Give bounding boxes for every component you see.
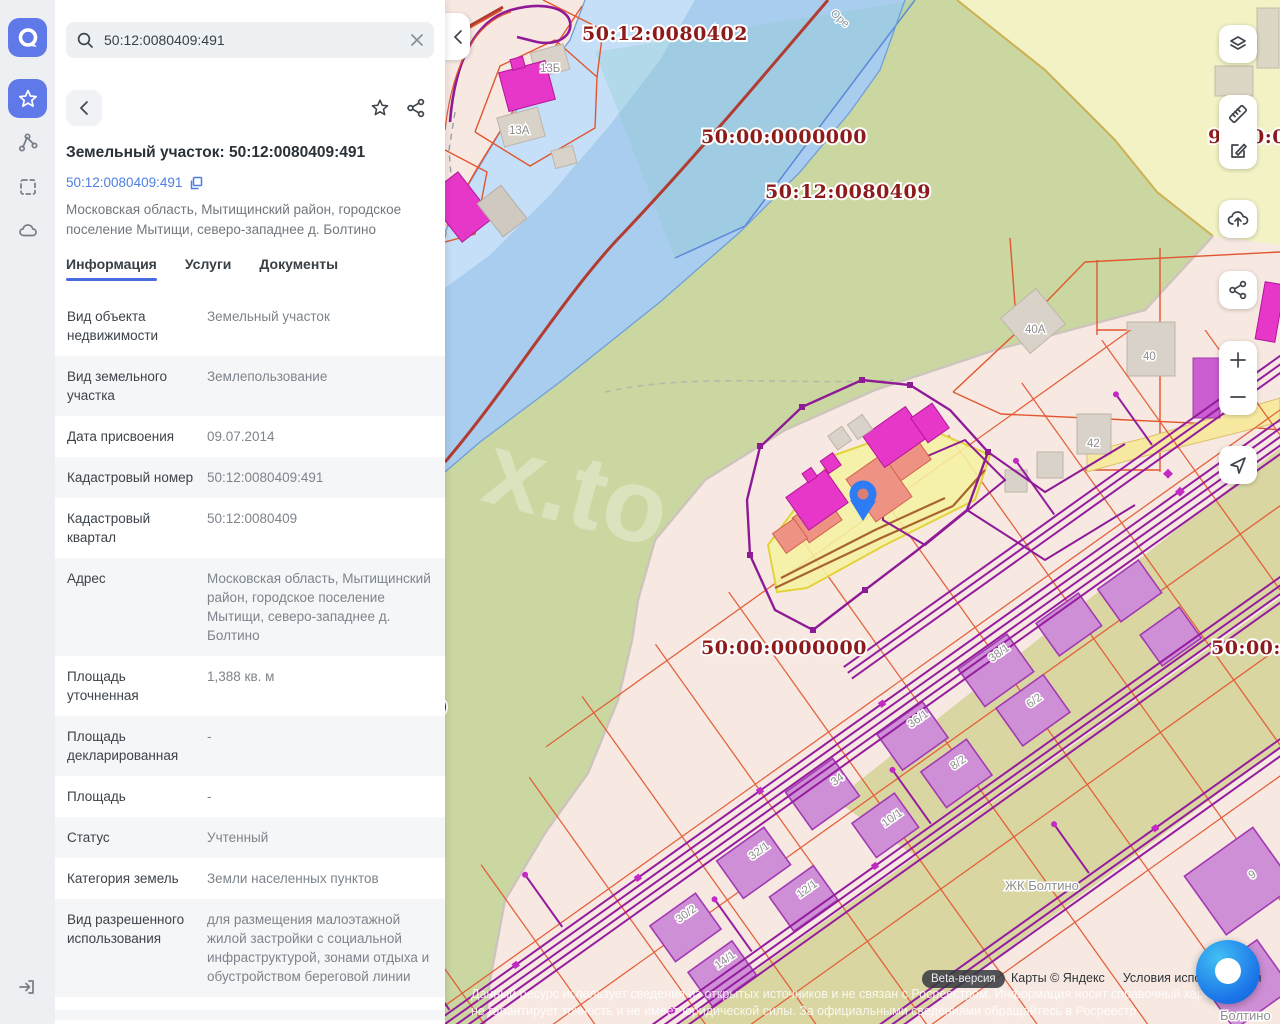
edit-button[interactable] (1219, 132, 1257, 169)
row-value: - (207, 727, 433, 765)
navigation-arrow-icon (1228, 455, 1248, 475)
cadastral-label: 50:12:0080409 (765, 181, 931, 203)
star-icon (16, 87, 40, 111)
layers-icon (1227, 33, 1249, 55)
house-label: 13А (509, 125, 530, 137)
cadastral-label: 50:12:0080402 (582, 23, 748, 45)
clear-search-icon[interactable] (410, 33, 424, 47)
chevron-left-icon (453, 30, 463, 44)
row-value: 50:12:0080409:491 (207, 468, 433, 487)
map-disclaimer: Данный ресурс использует сведения из отк… (471, 986, 1271, 1020)
row-value: Учтенный (207, 828, 433, 847)
cloud-upload-icon (1226, 208, 1250, 230)
tab-documents[interactable]: Документы (259, 256, 338, 281)
table-row: Вид земельного участка Землепользование (55, 356, 445, 416)
sidebar-item-area-select[interactable] (8, 167, 47, 206)
table-row: Площадь уточненная 1,388 кв. м (55, 656, 445, 716)
minus-icon (1229, 388, 1247, 406)
table-row: Кадастровый квартал 50:12:0080409 (55, 498, 445, 558)
sidebar-item-cloud[interactable] (8, 211, 47, 250)
zoom-in-button[interactable] (1219, 341, 1257, 378)
object-address: Московская область, Мытищинский район, г… (66, 200, 434, 240)
map-canvas[interactable]: x.to (445, 0, 1280, 1024)
plus-icon (1229, 351, 1247, 369)
layers-button[interactable] (1219, 25, 1257, 63)
favorite-button[interactable] (362, 90, 398, 126)
row-value: Землепользование (207, 367, 433, 405)
collapse-panel-button[interactable] (445, 13, 470, 60)
cloud-icon (16, 219, 40, 243)
back-button[interactable] (66, 90, 102, 126)
row-value: Земли населенных пунктов (207, 869, 433, 888)
row-label: Кадастровый квартал (67, 509, 195, 547)
tab-information[interactable]: Информация (66, 256, 157, 281)
row-label: Адрес (67, 569, 195, 645)
cadastral-label: 9 (445, 697, 448, 719)
info-panel: Земельный участок: 50:12:0080409:491 50:… (55, 0, 445, 1024)
row-value: 09.07.2014 (207, 427, 433, 446)
row-label: Статус (67, 828, 195, 847)
measure-edit-group (1219, 95, 1257, 169)
tab-bar: Информация Услуги Документы (66, 256, 434, 281)
beta-badge: Beta-версия (922, 970, 1005, 988)
house-label: 13Б (540, 63, 560, 75)
table-row: Площадь - (55, 776, 445, 817)
polygon-nodes-icon (16, 131, 40, 155)
copy-icon[interactable] (189, 176, 203, 190)
row-label: Категория земель (67, 869, 195, 888)
sign-in-icon (16, 975, 40, 999)
icon-rail (0, 0, 55, 1024)
cadastral-number-text: 50:12:0080409:491 (66, 175, 182, 190)
row-label: Площадь уточненная (67, 667, 195, 705)
place-label: ЖК Болтино (1005, 878, 1079, 893)
maps-copyright[interactable]: Карты © Яндекс (1011, 971, 1105, 985)
search-input[interactable] (102, 31, 402, 49)
table-row: Вид разрешенного использования для разме… (55, 899, 445, 997)
table-row: Площадь декларированная - (55, 716, 445, 776)
zoom-out-button[interactable] (1219, 378, 1257, 415)
table-row: Категория земель Земли населенных пункто… (55, 858, 445, 899)
table-row: Адрес Московская область, Мытищинский ра… (55, 558, 445, 656)
ruler-icon (1227, 103, 1249, 125)
row-label: Вид земельного участка (67, 367, 195, 405)
row-value: для размещения малоэтажной жилой застрой… (207, 910, 433, 986)
row-label: Площадь декларированная (67, 727, 195, 765)
share-icon (406, 98, 426, 118)
app-logo-icon (16, 26, 40, 50)
chat-bubble-icon (1210, 954, 1246, 990)
row-value: Земельный участок (207, 307, 433, 345)
dashed-selection-icon (17, 176, 39, 198)
row-label: Дата присвоения (67, 427, 195, 446)
page-title: Земельный участок: 50:12:0080409:491 (66, 144, 434, 162)
cadastral-label: 50:00:0000000 (701, 126, 867, 148)
share-object-button[interactable] (398, 90, 434, 126)
search-bar[interactable] (66, 22, 434, 58)
row-label: Площадь (67, 787, 195, 806)
house-label: 42 (1087, 438, 1100, 450)
attributes-table: Вид объекта недвижимости Земельный участ… (55, 296, 445, 1020)
row-value: - (207, 787, 433, 806)
upload-button[interactable] (1219, 200, 1257, 238)
table-row-partial (55, 1010, 445, 1020)
app-logo[interactable] (8, 18, 47, 57)
cadastral-label: 50:00:0000000 (701, 637, 867, 659)
table-row: Статус Учтенный (55, 817, 445, 858)
locate-button[interactable] (1219, 446, 1257, 484)
share-map-button[interactable] (1219, 271, 1257, 309)
tab-services[interactable]: Услуги (185, 256, 232, 281)
zoom-group (1219, 341, 1257, 415)
house-label: 40А (1025, 324, 1046, 336)
table-row: Вид объекта недвижимости Земельный участ… (55, 296, 445, 356)
star-outline-icon (369, 97, 391, 119)
chat-button[interactable] (1196, 940, 1260, 1004)
ruler-button[interactable] (1219, 95, 1257, 132)
sign-in-button[interactable] (8, 967, 47, 1006)
sidebar-item-favorites[interactable] (8, 79, 47, 118)
table-row: Кадастровый номер 50:12:0080409:491 (55, 457, 445, 498)
row-value: 1,388 кв. м (207, 667, 433, 705)
table-row: Дата присвоения 09.07.2014 (55, 416, 445, 457)
cadastral-number-link[interactable]: 50:12:0080409:491 (66, 175, 434, 190)
row-label: Кадастровый номер (67, 468, 195, 487)
chevron-left-icon (78, 100, 90, 116)
row-label: Вид разрешенного использования (67, 910, 195, 986)
disclaimer-line-1: Данный ресурс использует сведения из отк… (471, 986, 1271, 1003)
sidebar-item-objects[interactable] (8, 123, 47, 162)
map-graphics: x.to (445, 0, 1280, 1024)
search-icon (76, 31, 94, 49)
cadastral-label: 50:00:0000000 (1211, 637, 1280, 659)
share-icon (1228, 280, 1248, 300)
row-value: 50:12:0080409 (207, 509, 433, 547)
house-label: 40 (1143, 351, 1156, 363)
row-value: Московская область, Мытищинский район, г… (207, 569, 433, 645)
disclaimer-line-2: не гарантирует точность и не имеет юриди… (471, 1003, 1271, 1020)
row-label: Вид объекта недвижимости (67, 307, 195, 345)
edit-icon (1227, 140, 1249, 162)
